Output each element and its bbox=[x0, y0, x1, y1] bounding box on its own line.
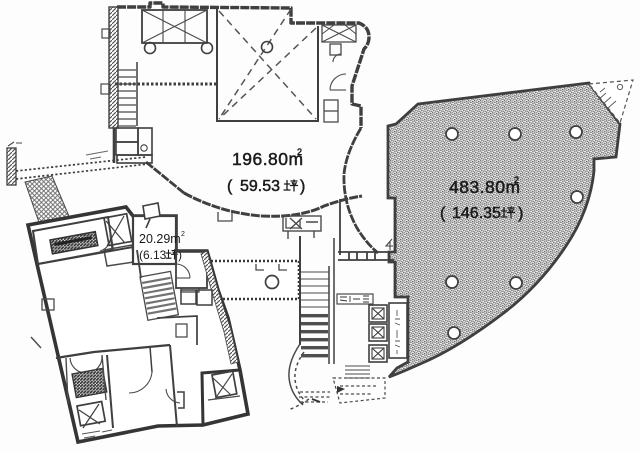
svg-text:2: 2 bbox=[297, 147, 302, 157]
svg-text:2: 2 bbox=[514, 175, 519, 185]
svg-text:20.29m: 20.29m bbox=[139, 232, 181, 246]
svg-text:): ) bbox=[300, 178, 305, 195]
svg-text:59.53: 59.53 bbox=[240, 178, 280, 195]
svg-text:2: 2 bbox=[181, 231, 185, 238]
svg-text:(: ( bbox=[440, 205, 446, 222]
svg-text:146.35: 146.35 bbox=[452, 205, 501, 222]
svg-text:(6.13: (6.13 bbox=[139, 248, 167, 262]
svg-text:483.80m: 483.80m bbox=[449, 177, 521, 197]
svg-text:196.80m: 196.80m bbox=[232, 149, 304, 169]
svg-text:(: ( bbox=[227, 178, 233, 195]
svg-text:): ) bbox=[518, 205, 523, 222]
